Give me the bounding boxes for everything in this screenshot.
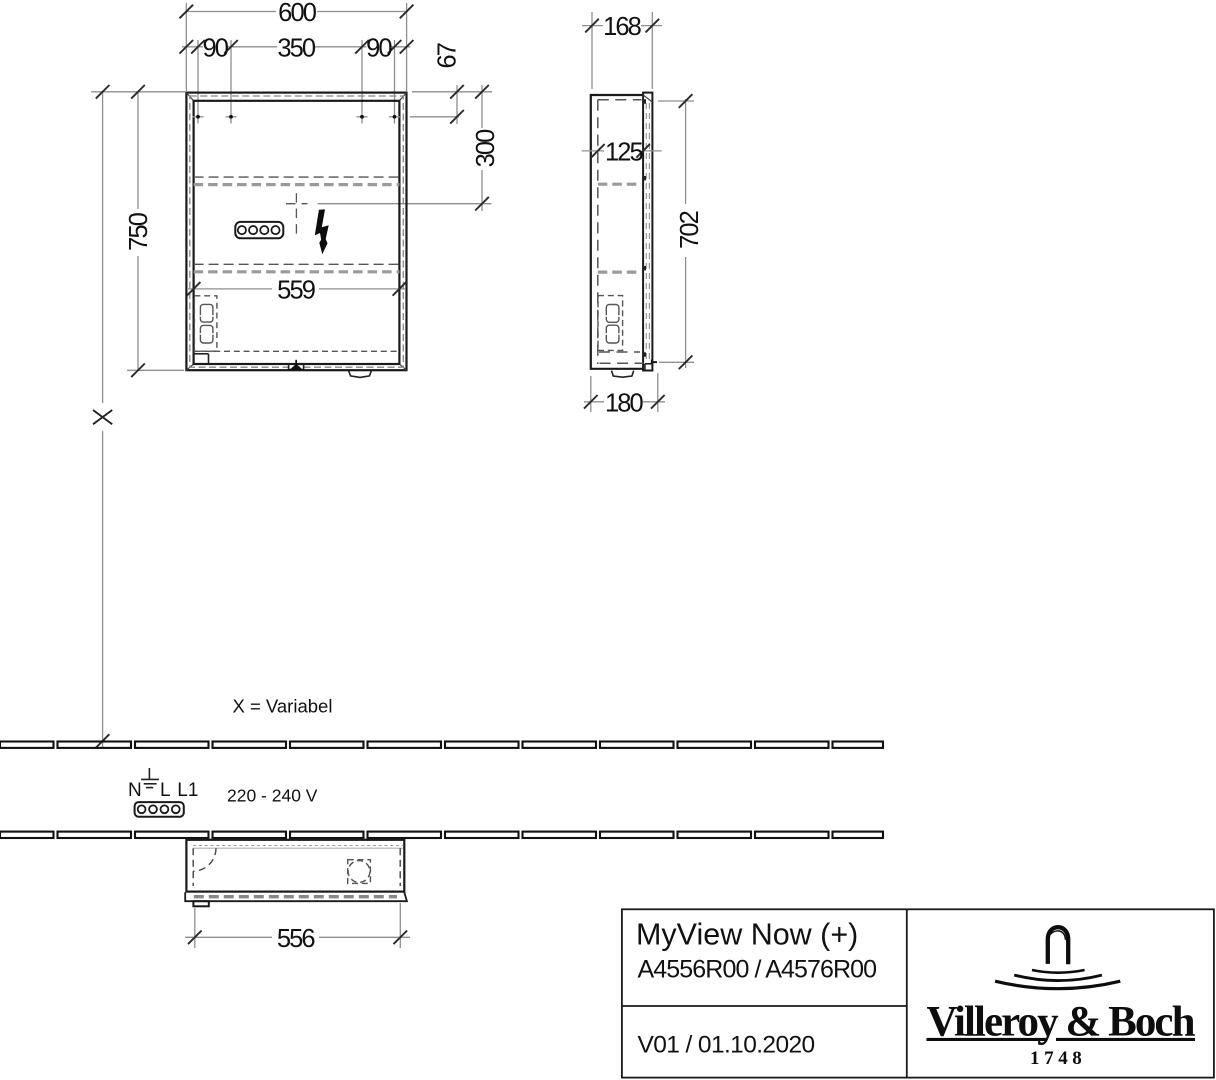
svg-text:125: 125 xyxy=(605,138,644,166)
svg-text:168: 168 xyxy=(603,13,642,41)
svg-text:67: 67 xyxy=(434,43,462,68)
svg-text:90: 90 xyxy=(366,34,392,62)
svg-text:L1: L1 xyxy=(177,780,198,801)
svg-text:MyView Now (+): MyView Now (+) xyxy=(636,918,858,952)
svg-text:90: 90 xyxy=(203,34,229,62)
svg-text:350: 350 xyxy=(277,34,316,62)
svg-text:1748: 1748 xyxy=(1030,1048,1086,1069)
svg-text:750: 750 xyxy=(125,212,153,251)
svg-text:702: 702 xyxy=(676,211,704,249)
svg-text:V01 / 01.10.2020: V01 / 01.10.2020 xyxy=(638,1032,815,1059)
svg-text:600: 600 xyxy=(278,0,317,27)
svg-text:300: 300 xyxy=(472,129,500,168)
svg-text:220 - 240 V: 220 - 240 V xyxy=(227,786,318,806)
svg-text:N: N xyxy=(128,780,142,801)
svg-text:X = Variabel: X = Variabel xyxy=(233,696,333,717)
svg-text:180: 180 xyxy=(605,389,644,417)
svg-text:559: 559 xyxy=(277,276,315,304)
svg-text:L: L xyxy=(160,780,171,801)
svg-text:556: 556 xyxy=(277,925,316,953)
svg-text:A4556R00 / A4576R00: A4556R00 / A4576R00 xyxy=(638,955,877,983)
